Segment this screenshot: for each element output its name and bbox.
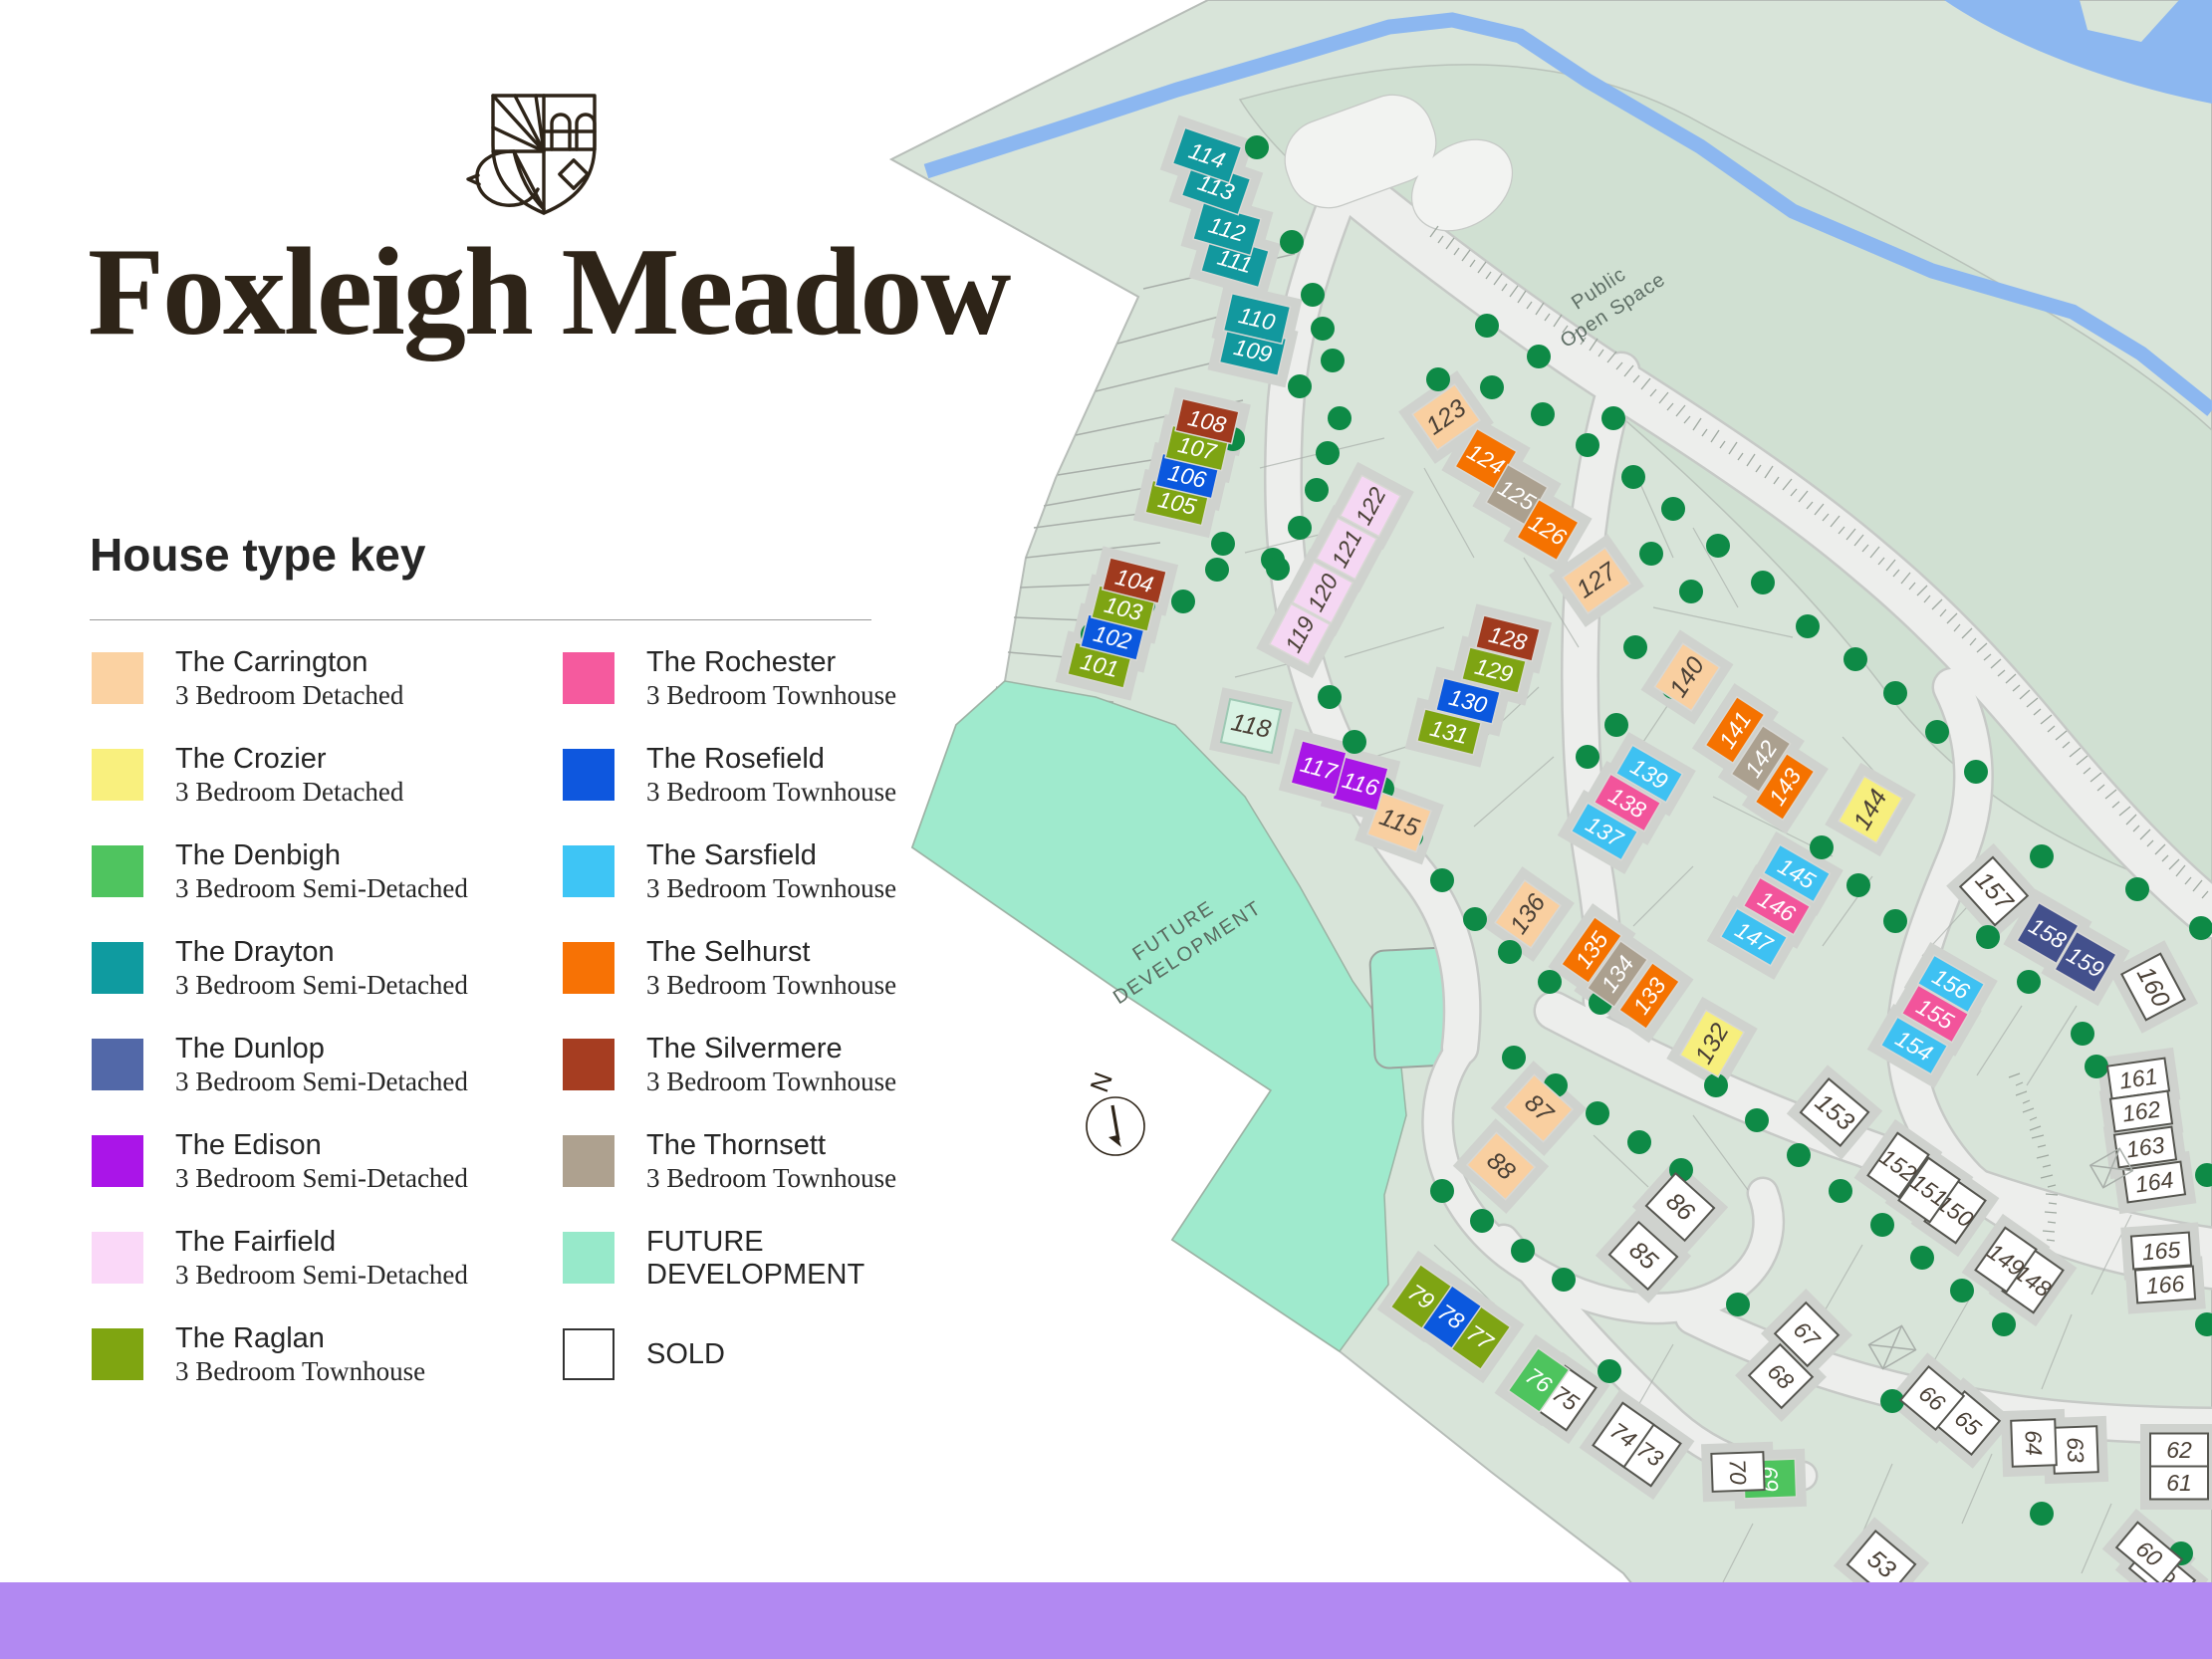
svg-text:N: N: [1084, 1068, 1118, 1096]
svg-text:166: 166: [2145, 1271, 2185, 1300]
svg-text:62: 62: [2166, 1437, 2192, 1463]
svg-text:164: 164: [2133, 1166, 2175, 1197]
svg-text:70: 70: [1725, 1459, 1752, 1486]
svg-text:63: 63: [2063, 1437, 2089, 1464]
svg-text:64: 64: [2021, 1430, 2048, 1456]
svg-text:61: 61: [2166, 1470, 2192, 1496]
svg-text:161: 161: [2117, 1063, 2159, 1093]
svg-text:165: 165: [2141, 1237, 2181, 1266]
svg-text:163: 163: [2124, 1131, 2166, 1162]
svg-text:162: 162: [2120, 1095, 2162, 1126]
